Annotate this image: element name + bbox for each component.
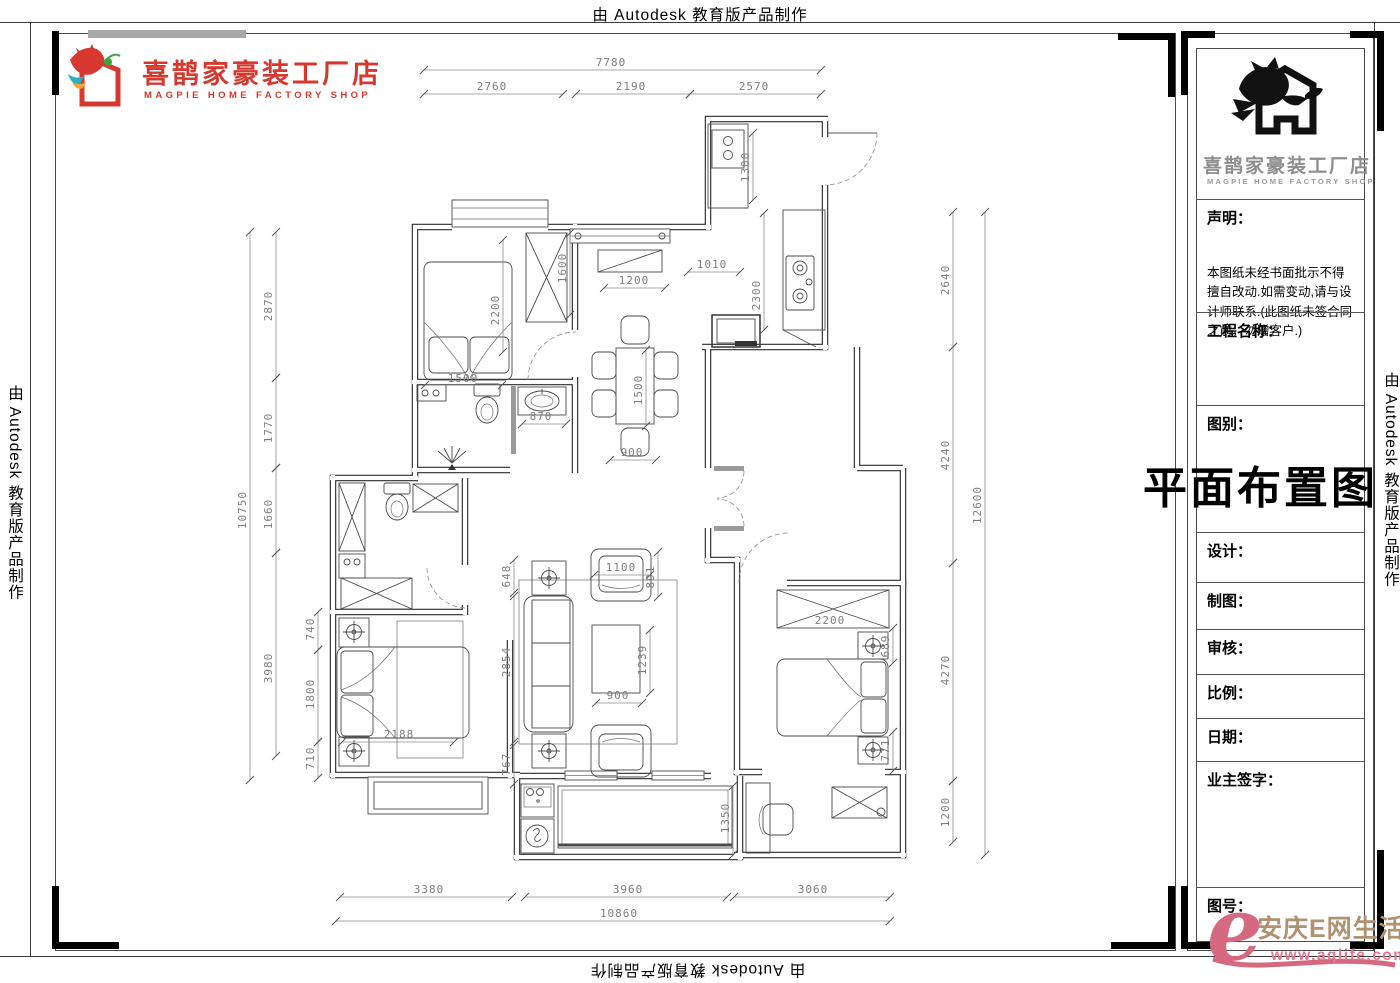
brand-name-en: MAGPIE HOME FACTORY SHOP (144, 90, 371, 101)
frame-corner (52, 886, 59, 949)
frame-corner (1181, 886, 1188, 949)
project-row: 工程名称： (1197, 312, 1364, 406)
border-line-bottom (0, 956, 1400, 957)
statement-label: 声明： (1207, 207, 1252, 228)
autodesk-banner-right: 由 Autodesk 教育版产品制作 (1379, 372, 1400, 587)
watermark: e 安庆E网生活 www.aqlife.com (1205, 895, 1400, 980)
brand-logo: 喜鹊家豪装工厂店 MAGPIE HOME FACTORY SHOP (62, 40, 382, 120)
autodesk-banner-bottom: 由 Autodesk 教育版产品制作 (590, 960, 805, 982)
drawing-title: 平面布置图 (1143, 452, 1378, 516)
statement-row: 声明： 本图纸未经书面批示不得擅自改动.如需变动,请与设计师联系.(此图纸未签合… (1197, 199, 1364, 313)
scale-label: 比例： (1207, 682, 1252, 703)
border-line-top (0, 22, 1400, 23)
watermark-site-url: www.aqlife.com (1271, 947, 1400, 965)
frame-corner (1181, 31, 1215, 38)
drafter-row: 制图： (1197, 582, 1364, 630)
magpie-logo-icon (62, 40, 136, 116)
frame-corner (1181, 31, 1188, 95)
date-label: 日期： (1207, 726, 1252, 747)
designer-row: 设计： (1197, 532, 1364, 583)
frame-corner (55, 942, 119, 949)
owner-sign-row: 业主签字： (1197, 761, 1364, 888)
frame-corner (1168, 886, 1175, 949)
watermark-site-name: 安庆E网生活 (1257, 909, 1400, 945)
brand-name-cn: 喜鹊家豪装工厂店 (142, 52, 382, 91)
autodesk-banner-left: 由 Autodesk 教育版产品制作 (3, 385, 25, 600)
title-logo-cn: 喜鹊家豪装工厂店 (1203, 151, 1371, 178)
title-logo-cell: 喜鹊家豪装工厂店 MAGPIE HOME FACTORY SHOP (1197, 49, 1364, 199)
frame-corner (52, 31, 59, 95)
scale-row: 比例： (1197, 674, 1364, 719)
project-label: 工程名称： (1207, 320, 1282, 341)
frame-corner (1377, 31, 1384, 131)
frame-corner (1111, 942, 1175, 949)
border-line-left (30, 22, 31, 956)
watermark-e-icon: e (1207, 885, 1263, 973)
magpie-logo-black-icon (1229, 55, 1333, 151)
date-row: 日期： (1197, 718, 1364, 762)
frame-gray-bar (88, 30, 246, 38)
reviewer-label: 审核： (1207, 637, 1252, 658)
category-label: 图别： (1207, 413, 1252, 434)
designer-label: 设计： (1207, 540, 1252, 561)
cad-floorplan-sheet: { "border_texts": { "top": "由 Autodesk 教… (0, 0, 1400, 983)
reviewer-row: 审核： (1197, 629, 1364, 675)
title-logo-en: MAGPIE HOME FACTORY SHOP (1207, 177, 1375, 186)
drafter-label: 制图： (1207, 590, 1252, 611)
frame-corner (1168, 33, 1175, 97)
drawing-frame (55, 33, 1176, 951)
owner-sign-label: 业主签字： (1207, 769, 1282, 790)
frame-corner (1118, 33, 1175, 40)
